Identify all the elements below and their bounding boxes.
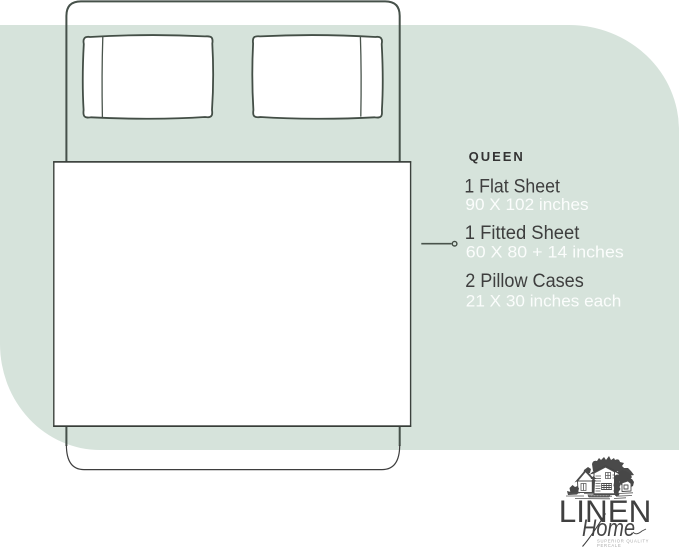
svg-text:QUEEN: QUEEN [469, 149, 525, 164]
svg-text:PERCALE: PERCALE [597, 543, 621, 548]
svg-text:21 X 30 inches each: 21 X 30 inches each [466, 291, 622, 310]
svg-text:90 X 102 inches: 90 X 102 inches [465, 195, 588, 214]
svg-text:2 Pillow Cases: 2 Pillow Cases [465, 271, 584, 292]
svg-text:60 X 80 + 14 inches: 60 X 80 + 14 inches [466, 242, 624, 261]
svg-text:1 Fitted Sheet: 1 Fitted Sheet [465, 223, 580, 244]
